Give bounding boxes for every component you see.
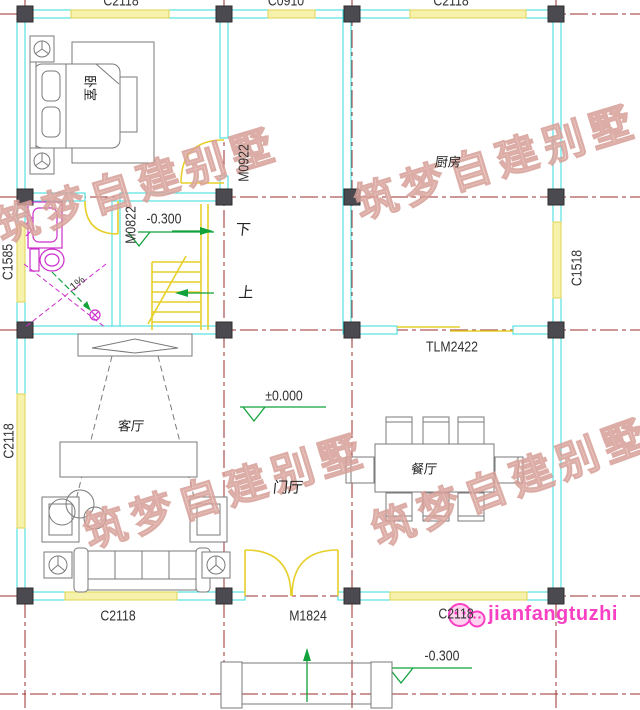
window-label-bathroom: C1585 (1, 244, 16, 280)
window-label-kitchen: C1518 (570, 250, 585, 286)
door-label-kitchen-sliding: TLM2422 (426, 340, 478, 355)
window-label-living-left: C2118 (2, 423, 17, 458)
room-label-kitchen: 厨房 (434, 156, 461, 169)
elevation-foyer: ±0.000 (265, 389, 303, 404)
door-label-entry: M1824 (289, 609, 327, 624)
living-room-furniture (42, 334, 230, 592)
room-label-foyer: 门厅 (272, 481, 304, 496)
window-label-top-right: C2118 (433, 0, 468, 9)
bathroom-fixtures (24, 202, 106, 328)
window-label-top-mid: C0910 (268, 0, 304, 9)
door-label-bedroom: M0922 (237, 144, 252, 182)
door-swings (85, 140, 513, 596)
window-label-bottom-right: C2118 (438, 607, 473, 622)
stair-note-down: 下 (235, 223, 252, 238)
stair-note-up: 上 (238, 286, 255, 301)
room-label-bedroom: 卧室 (84, 75, 97, 101)
elevation-exterior: -0.300 (425, 649, 460, 664)
room-label-living: 客厅 (117, 420, 144, 433)
window-label-top-left: C2118 (103, 0, 138, 9)
elevation-stair-landing: -0.300 (147, 212, 182, 227)
door-label-bathroom: M0822 (124, 206, 139, 244)
bedroom-furniture (30, 36, 154, 174)
floor-plan-canvas: 筑梦自建别墅 筑梦自建别墅 筑梦自建别墅 筑梦自建别墅 C2118 C0910 … (0, 0, 640, 710)
room-label-dining: 餐厅 (410, 463, 437, 476)
site-logo-text: jianfangtuzhi (488, 604, 618, 624)
window-label-bottom-left: C2118 (100, 609, 135, 624)
